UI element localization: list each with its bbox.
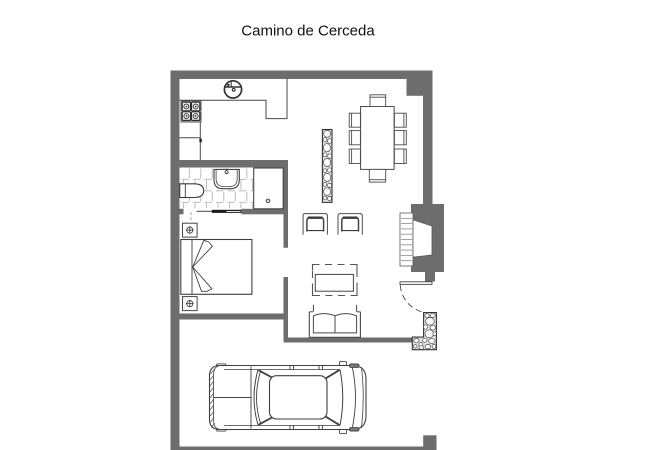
svg-text:Camino de Cerceda: Camino de Cerceda <box>241 23 375 40</box>
